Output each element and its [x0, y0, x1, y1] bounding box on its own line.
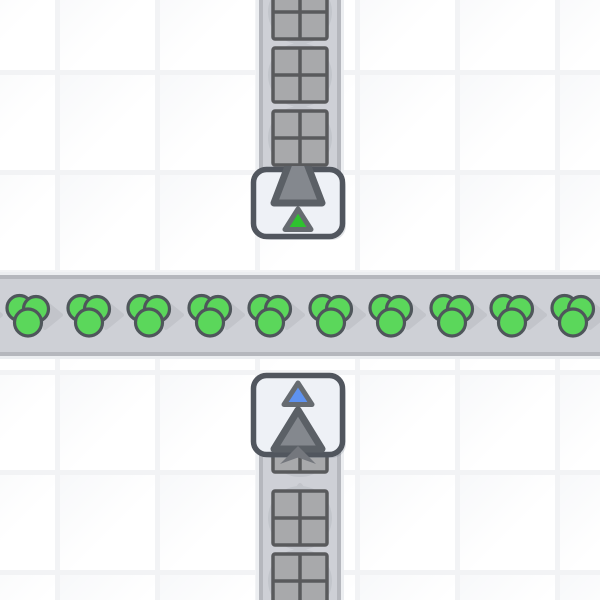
item-circle-cluster-shape: [179, 284, 241, 346]
item-circle-cluster-shape: [0, 284, 59, 346]
item-circle-cluster-shape: [542, 284, 600, 346]
item-circle-cluster-shape: [481, 284, 543, 346]
item-circle-cluster-shape: [360, 284, 422, 346]
item-circle-cluster-shape: [118, 284, 180, 346]
conveyor-belt-top[interactable]: [259, 0, 341, 172]
tunnel-mouth-icon: [276, 444, 320, 466]
conveyor-belt-bottom[interactable]: [259, 450, 341, 600]
tunnel-exit-building[interactable]: [250, 166, 354, 248]
item-circle-cluster-shape: [58, 284, 120, 346]
item-circle-cluster-shape: [300, 284, 362, 346]
item-circle-cluster-shape: [421, 284, 483, 346]
conveyor-belt-main[interactable]: [0, 275, 600, 356]
game-viewport: [0, 0, 600, 600]
item-square-shape: [262, 100, 338, 172]
item-circle-cluster-shape: [239, 284, 301, 346]
item-square-shape: [262, 543, 338, 600]
